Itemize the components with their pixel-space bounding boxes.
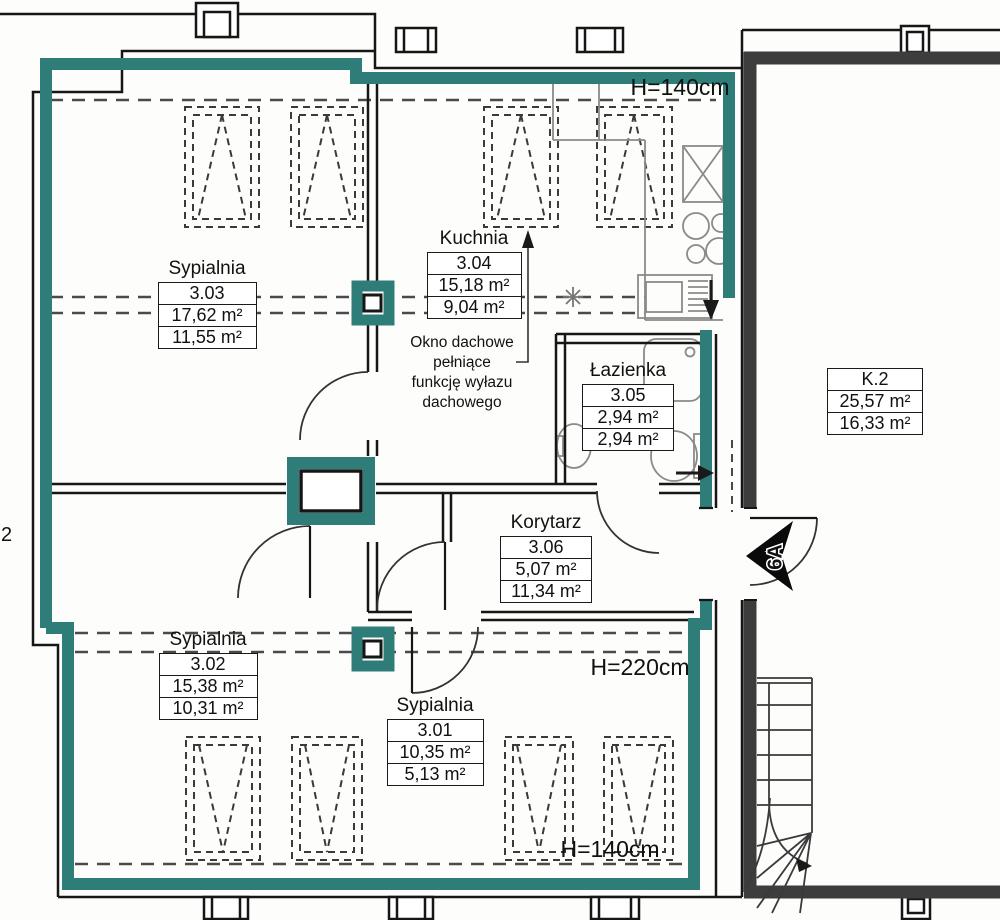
interior-walls	[40, 80, 701, 620]
room-name: Sypialnia	[151, 258, 263, 280]
room-area: 10,35 m²	[388, 741, 483, 763]
height-label-top: H=140cm	[600, 74, 760, 101]
room-area: 25,57 m²	[828, 390, 922, 412]
room-reduced-area: 5,13 m²	[388, 763, 483, 785]
kitchen-fixtures	[553, 82, 732, 320]
lamp-symbol-icon	[563, 287, 583, 307]
room-reduced-area: 11,34 m²	[501, 580, 591, 602]
building-outline	[0, 3, 1000, 919]
masonry-pillars	[293, 286, 389, 666]
room-name: Sypialnia	[153, 629, 263, 651]
room-name: Korytarz	[498, 512, 594, 534]
door-arc	[300, 372, 368, 440]
room-label-lazienka-305: Łazienka 3.05 2,94 m² 2,94 m²	[580, 360, 676, 451]
room-area: 17,62 m²	[159, 304, 256, 326]
room-label-sypialnia-301: Sypialnia 3.01 10,35 m² 5,13 m²	[382, 695, 488, 786]
room-reduced-area: 11,55 m²	[159, 326, 256, 348]
door-arc	[377, 542, 445, 610]
room-area: 2,94 m²	[583, 406, 673, 428]
door-jambs	[699, 508, 713, 600]
height-label-bottom: H=140cm	[530, 836, 690, 863]
room-number: K.2	[828, 369, 922, 390]
door-arc	[238, 526, 310, 598]
cabinet-icon	[638, 275, 712, 318]
room-number: 3.05	[583, 385, 673, 406]
room-label-korytarz-306: Korytarz 3.06 5,07 m² 11,34 m²	[498, 512, 594, 603]
skylight-note-line: funkcję wyłazu	[388, 373, 536, 393]
room-area: 15,38 m²	[160, 675, 257, 697]
room-name: Kuchnia	[424, 228, 524, 250]
room-number: 3.01	[388, 720, 483, 741]
room-name: Sypialnia	[382, 695, 488, 717]
arrow-down-icon	[703, 300, 719, 320]
floor-plan-page: 6A Sypialnia 3.03 17,62 m² 11,55 m² Kuch…	[0, 0, 1000, 920]
floor-plan-svg: 6A	[0, 0, 1000, 920]
room-reduced-area: 9,04 m²	[428, 296, 521, 318]
room-reduced-area: 10,31 m²	[160, 697, 257, 719]
room-reduced-area: 16,33 m²	[828, 412, 922, 434]
room-number: 3.04	[428, 253, 521, 274]
skylight-note-line: Okno dachowe	[388, 333, 536, 353]
entrance-door-label: 6A	[764, 544, 786, 570]
stair-walk-line	[769, 683, 808, 864]
room-label-sypialnia-303: Sypialnia 3.03 17,62 m² 11,55 m²	[151, 258, 263, 349]
room-number: 3.03	[159, 283, 256, 304]
room-area: 5,07 m²	[501, 558, 591, 580]
skylight-note-line: dachowego	[388, 393, 536, 413]
door-arc	[597, 491, 659, 553]
room-name: Łazienka	[580, 360, 676, 382]
room-label-k2-stairwell: K.2 25,57 m² 16,33 m²	[826, 366, 924, 435]
skylight-note-line: pełniące	[388, 353, 536, 373]
room-number: 3.06	[501, 537, 591, 558]
edge-number-label: 2	[1, 524, 12, 547]
room-label-sypialnia-302: Sypialnia 3.02 15,38 m² 10,31 m²	[153, 629, 263, 720]
room-number: 3.02	[160, 654, 257, 675]
room-label-kuchnia-304: Kuchnia 3.04 15,18 m² 9,04 m²	[424, 228, 524, 319]
room-reduced-area: 2,94 m²	[583, 428, 673, 450]
door-arc	[412, 627, 478, 693]
entrance-marker: 6A	[746, 521, 793, 591]
stairwell-walls	[744, 52, 1000, 892]
room-area: 15,18 m²	[428, 274, 521, 296]
height-label-mid: H=220cm	[560, 654, 720, 681]
skylight-note: Okno dachowe pełniące funkcję wyłazu dac…	[388, 333, 536, 413]
